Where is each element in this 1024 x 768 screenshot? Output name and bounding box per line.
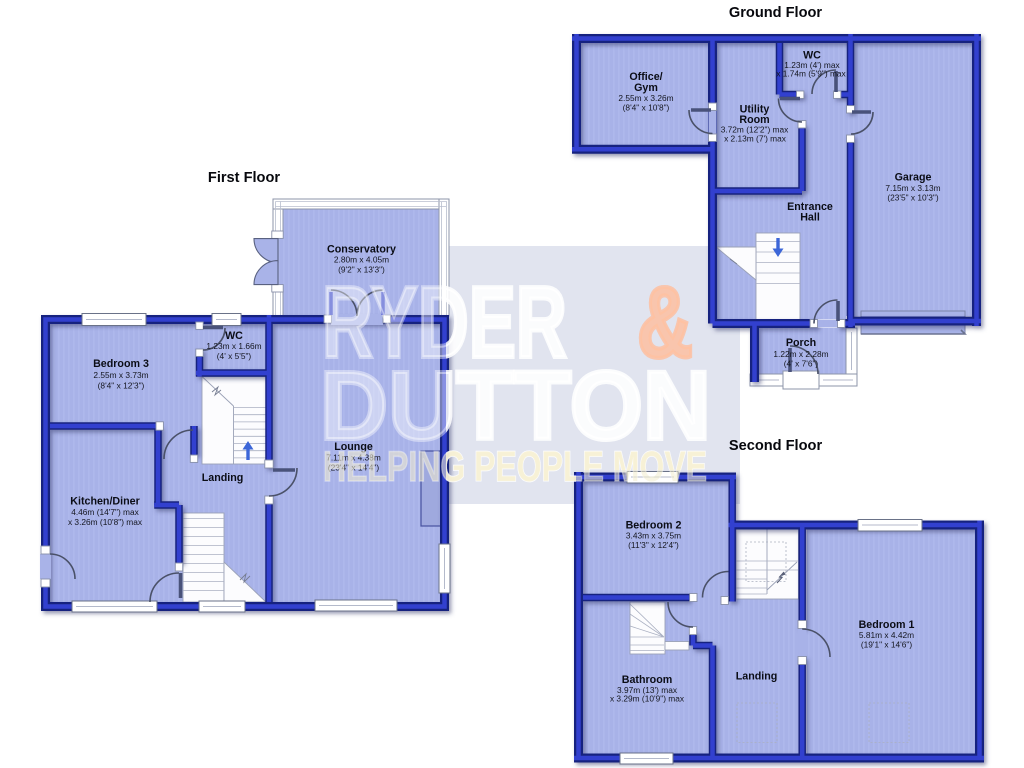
- svg-text:4.46m (14'7") max: 4.46m (14'7") max: [71, 507, 139, 517]
- svg-text:(8'4" x 10'8"): (8'4" x 10'8"): [623, 103, 670, 113]
- svg-text:Landing: Landing: [202, 472, 244, 484]
- svg-text:(19'1" x 14'6"): (19'1" x 14'6"): [861, 640, 913, 650]
- svg-text:Hall: Hall: [800, 212, 820, 224]
- svg-text:1.22m x 2.28m: 1.22m x 2.28m: [773, 349, 828, 359]
- svg-text:2.80m x 4.05m: 2.80m x 4.05m: [334, 255, 389, 265]
- svg-text:Garage: Garage: [895, 172, 932, 184]
- svg-text:Bedroom 3: Bedroom 3: [93, 358, 149, 370]
- svg-text:x 3.29m (10'9") max: x 3.29m (10'9") max: [610, 694, 685, 704]
- svg-text:(4' x 7'6"): (4' x 7'6"): [784, 359, 819, 369]
- svg-text:3.43m x 3.75m: 3.43m x 3.75m: [626, 531, 681, 541]
- svg-text:(23'5" x 10'3"): (23'5" x 10'3"): [887, 193, 939, 203]
- svg-text:5.81m x 4.42m: 5.81m x 4.42m: [859, 630, 914, 640]
- svg-text:x 2.13m (7') max: x 2.13m (7') max: [724, 134, 787, 144]
- svg-text:(4' x 5'5"): (4' x 5'5"): [217, 351, 252, 361]
- svg-text:(11'3" x 12'4"): (11'3" x 12'4"): [628, 540, 679, 550]
- svg-text:1.23m x 1.66m: 1.23m x 1.66m: [206, 341, 261, 351]
- svg-text:First Floor: First Floor: [208, 170, 280, 186]
- svg-text:Ground Floor: Ground Floor: [729, 5, 823, 21]
- svg-text:x 1.74m (5'9") max: x 1.74m (5'9") max: [776, 69, 846, 79]
- svg-text:(8'4" x 12'3"): (8'4" x 12'3"): [98, 381, 145, 391]
- svg-text:7.15m x 3.13m: 7.15m x 3.13m: [885, 183, 940, 193]
- svg-text:Porch: Porch: [786, 337, 816, 349]
- svg-text:2.55m x 3.26m: 2.55m x 3.26m: [618, 93, 673, 103]
- svg-text:2.55m x 3.73m: 2.55m x 3.73m: [93, 370, 148, 380]
- svg-text:x 3.26m (10'8") max: x 3.26m (10'8") max: [68, 517, 143, 527]
- svg-text:Landing: Landing: [736, 671, 778, 683]
- svg-text:Second Floor: Second Floor: [729, 438, 823, 454]
- svg-text:Kitchen/Diner: Kitchen/Diner: [70, 496, 139, 508]
